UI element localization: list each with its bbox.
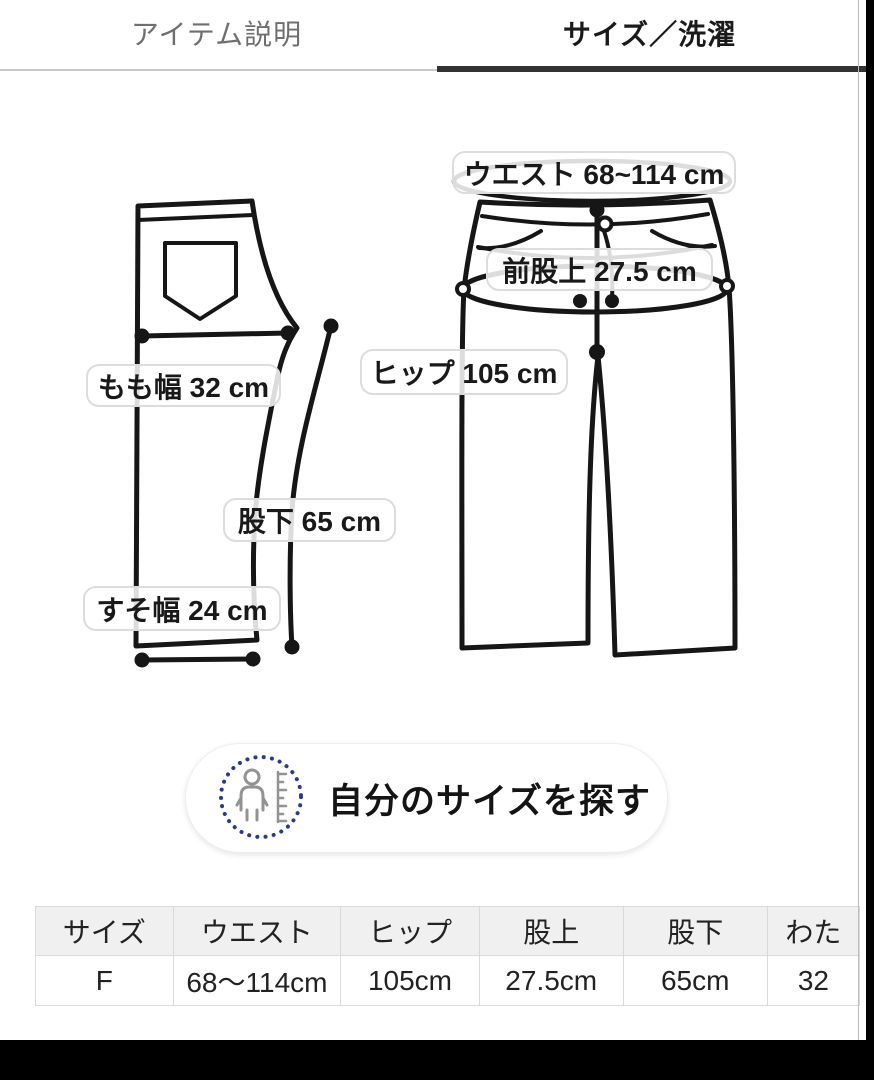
label-thigh-width: もも幅 32 cm: [86, 364, 281, 407]
screen-right-black-bar: [866, 0, 874, 1080]
label-waist: ウエスト 68~114 cm: [452, 151, 736, 194]
size-table: サイズ ウエスト ヒップ 股上 股下 わた F 68〜114cm 105cm 2…: [35, 906, 860, 1006]
col-hip: ヒップ: [341, 907, 480, 956]
back-pocket: [165, 243, 236, 319]
cell-thigh-truncated: 32: [767, 956, 859, 1006]
col-thigh-truncated: わた: [767, 907, 859, 956]
cell-inseam: 65cm: [623, 956, 767, 1006]
pants-side-outline: [136, 201, 297, 646]
tab-size-washing[interactable]: サイズ／洗濯: [433, 0, 866, 66]
waistband-seam: [482, 214, 708, 225]
cell-waist: 68〜114cm: [173, 956, 340, 1006]
screen-bottom-black-bar: [0, 1040, 874, 1080]
label-inseam: 股下 65 cm: [223, 498, 396, 542]
col-inseam: 股下: [623, 907, 767, 956]
active-tab-indicator: [437, 66, 866, 72]
content-right-hairline: [858, 0, 859, 1040]
find-my-size-label: 自分のサイズを探す: [328, 773, 651, 824]
waist-button: [599, 218, 612, 231]
size-table-header-row: サイズ ウエスト ヒップ 股上 股下 わた: [36, 907, 860, 956]
thigh-measure-line: [142, 333, 288, 336]
cell-size: F: [36, 956, 174, 1006]
col-waist: ウエスト: [173, 907, 340, 956]
label-hip: ヒップ 105 cm: [360, 349, 568, 395]
inseam-measure-curve: [290, 326, 331, 647]
size-table-container: サイズ ウエスト ヒップ 股上 股下 わた F 68〜114cm 105cm 2…: [0, 906, 860, 1006]
front-pocket-right: [652, 231, 715, 247]
tab-item-description[interactable]: アイテム説明: [0, 0, 433, 66]
tab-bar: アイテム説明 サイズ／洗濯: [0, 0, 866, 72]
label-front-rise: 前股上 27.5 cm: [486, 248, 713, 291]
hem-measure-line: [142, 659, 253, 660]
cell-rise: 27.5cm: [479, 956, 623, 1006]
body-measure-icon: [216, 752, 306, 845]
product-size-page: アイテム説明 サイズ／洗濯: [0, 0, 874, 1080]
front-pocket-left: [479, 231, 541, 248]
find-my-size-button[interactable]: 自分のサイズを探す: [185, 743, 668, 853]
col-size: サイズ: [36, 907, 174, 956]
size-table-row-F: F 68〜114cm 105cm 27.5cm 65cm 32: [36, 956, 860, 1006]
cell-hip: 105cm: [341, 956, 480, 1006]
label-hem-width: すそ幅 24 cm: [83, 586, 281, 631]
col-rise: 股上: [479, 907, 623, 956]
side-waistband-seam: [138, 215, 253, 220]
